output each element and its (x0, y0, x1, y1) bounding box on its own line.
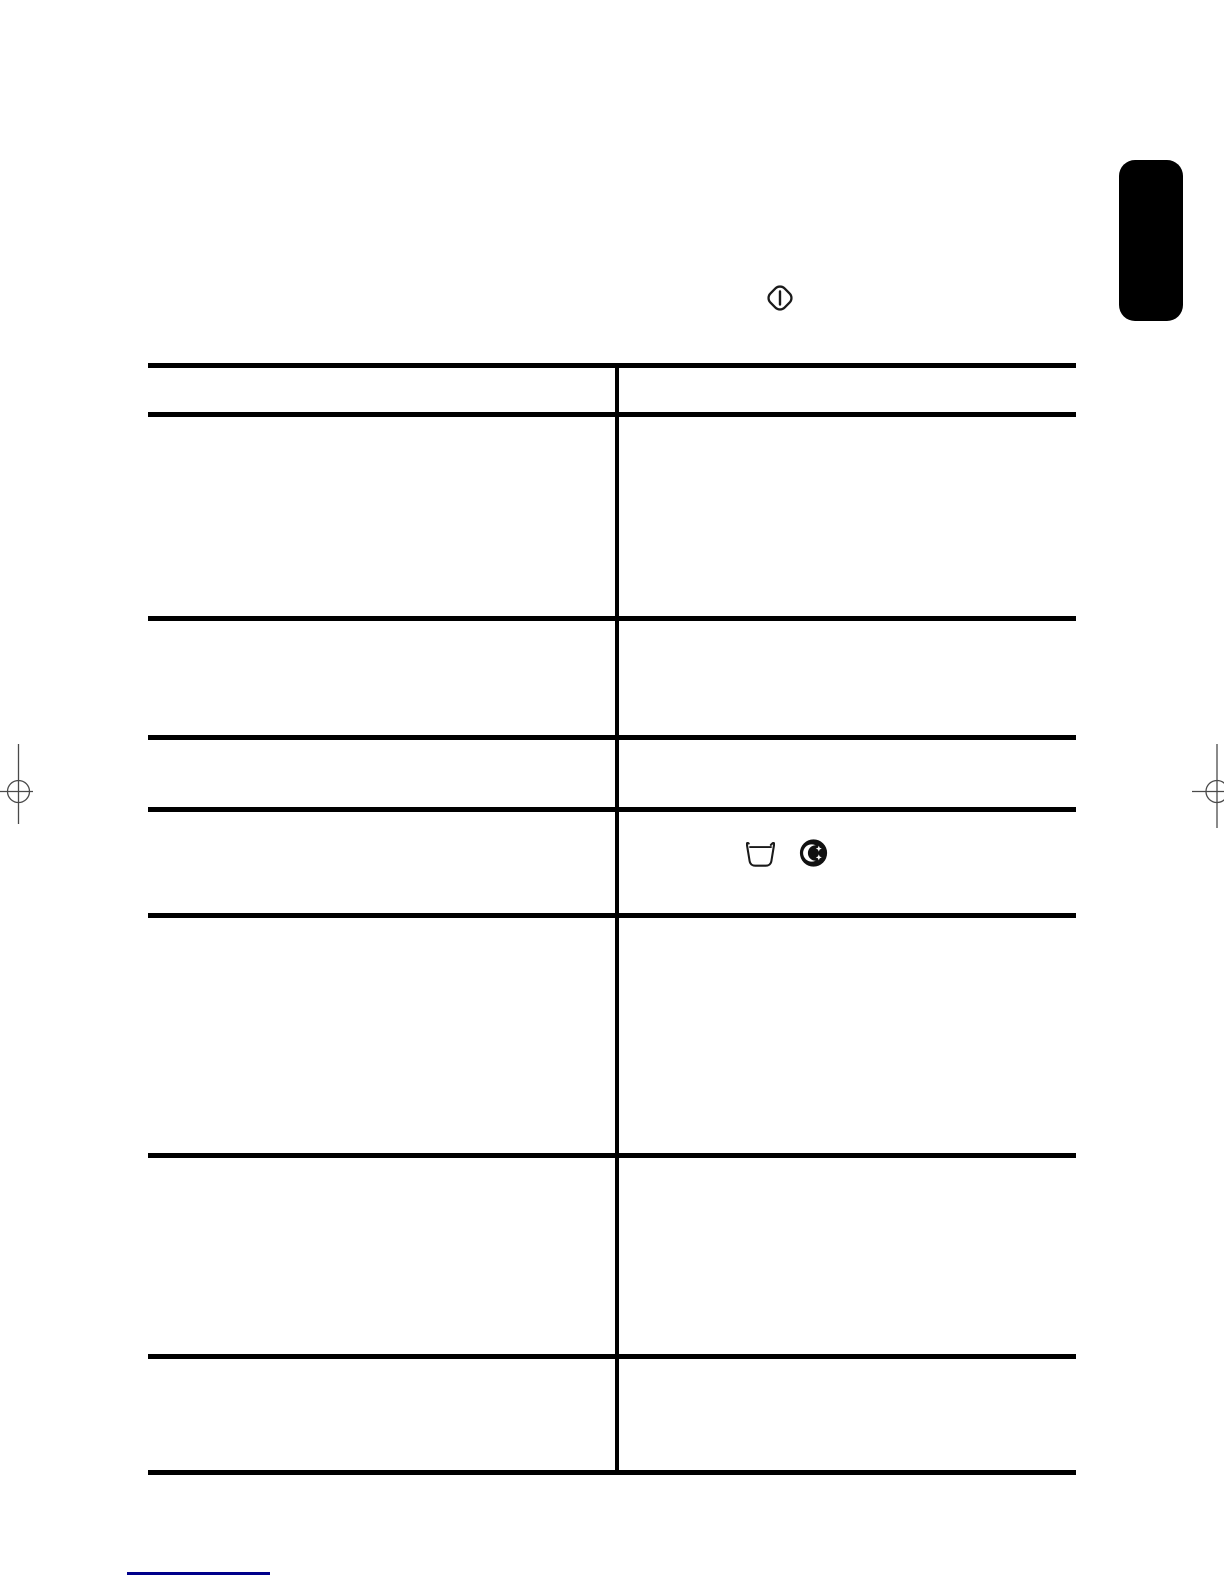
table-row (148, 1153, 1076, 1354)
table-row (148, 735, 1076, 807)
table-cell-left (148, 417, 619, 616)
table-header-cell-right (619, 368, 1076, 412)
registration-mark-right-icon (1184, 740, 1224, 830)
registration-mark-left-icon (0, 740, 40, 830)
table-cell-right (619, 812, 1076, 913)
wash-tub-icon (746, 842, 775, 867)
table-cell-left (148, 918, 619, 1153)
table-row (148, 807, 1076, 913)
night-wash-icon (798, 838, 829, 868)
table-cell-right (619, 1158, 1076, 1354)
footer-accent-rule (127, 1572, 270, 1575)
table-row (148, 913, 1076, 1153)
troubleshooting-table (148, 363, 1076, 1475)
table-cell-right (619, 621, 1076, 735)
table-row (148, 1354, 1076, 1470)
section-tab-marker (1119, 160, 1183, 321)
table-cell-left (148, 740, 619, 807)
manual-page (0, 0, 1224, 1584)
table-cell-left (148, 621, 619, 735)
table-header-cell-left (148, 368, 619, 412)
table-cell-left (148, 1359, 619, 1470)
table-row (148, 616, 1076, 735)
table-cell-right (619, 417, 1076, 616)
table-cell-right (619, 740, 1076, 807)
table-cell-left (148, 812, 619, 913)
table-header-row (148, 363, 1076, 412)
start-button-icon (763, 281, 797, 315)
table-cell-right (619, 918, 1076, 1153)
table-row (148, 412, 1076, 616)
table-cell-left (148, 1158, 619, 1354)
table-cell-right (619, 1359, 1076, 1470)
